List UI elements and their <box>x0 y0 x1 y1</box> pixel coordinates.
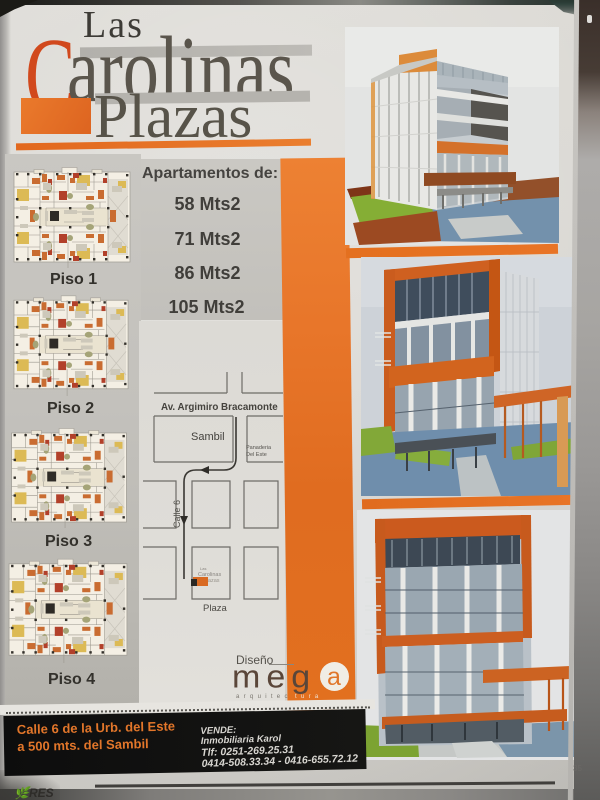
svg-text:Plaza: Plaza <box>203 603 227 614</box>
svg-text:Las: Las <box>200 566 206 571</box>
svg-text:Del Este: Del Este <box>246 452 267 458</box>
svg-text:Panaderia: Panaderia <box>246 445 272 451</box>
svg-text:Sambil: Sambil <box>191 431 225 443</box>
svg-text:Calle 6: Calle 6 <box>172 500 182 528</box>
svg-text:Av. Argimiro Bracamonte: Av. Argimiro Bracamonte <box>161 402 278 413</box>
